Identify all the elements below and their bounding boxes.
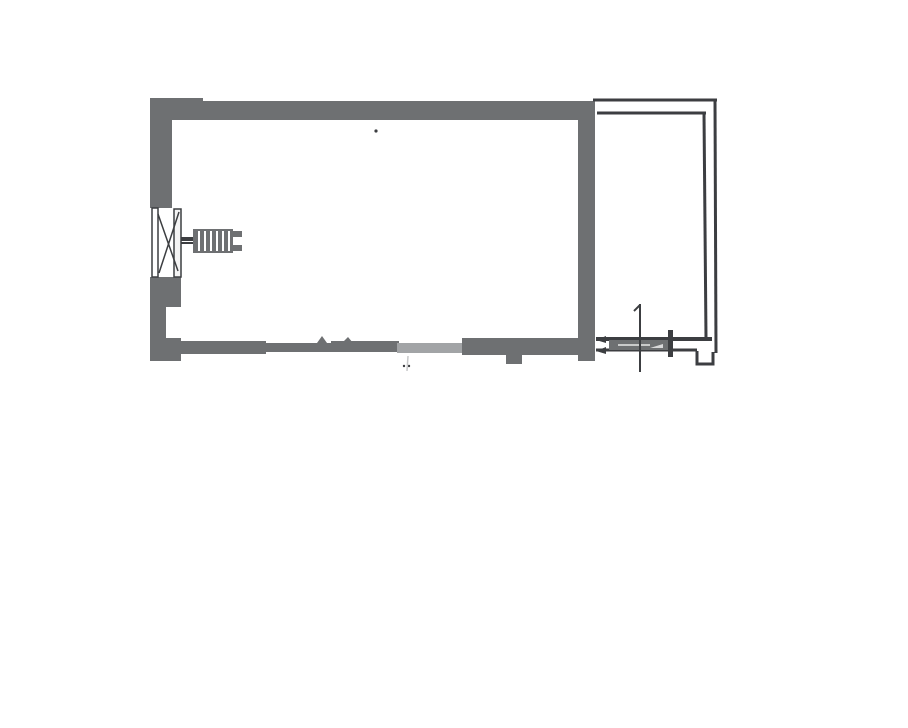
balcony-corner-notch bbox=[697, 351, 713, 364]
scan-speck bbox=[374, 129, 377, 132]
door-stop-bar bbox=[668, 330, 673, 357]
radiator-icon-notch-top bbox=[231, 231, 242, 237]
bottom-wall-tick-1 bbox=[317, 336, 327, 343]
bottom-wall-tick-2 bbox=[342, 337, 353, 343]
bottom-wall-faded-segment bbox=[397, 343, 465, 353]
main-room-top-and-left-wall bbox=[150, 98, 594, 208]
scan-dot-1 bbox=[403, 365, 405, 367]
bottom-wall-middle-segment bbox=[266, 341, 399, 352]
balcony-outer-right-line bbox=[715, 100, 716, 353]
scan-faint-streak bbox=[407, 356, 408, 371]
left-wall-below-window bbox=[150, 277, 181, 339]
window-outer-bar bbox=[152, 208, 158, 277]
bottom-wall-right-segment bbox=[462, 338, 578, 364]
scan-dot-2 bbox=[408, 365, 410, 367]
radiator-icon-notch-bottom bbox=[231, 245, 242, 251]
door-arrow-lower bbox=[596, 347, 606, 354]
bottom-wall-left-segment bbox=[150, 338, 266, 361]
scanned-page bbox=[0, 0, 908, 728]
balcony-inner-right-line bbox=[704, 113, 706, 338]
window-inner-bar bbox=[174, 209, 181, 277]
main-room-right-wall bbox=[578, 101, 595, 361]
floor-plan-svg bbox=[0, 0, 908, 728]
